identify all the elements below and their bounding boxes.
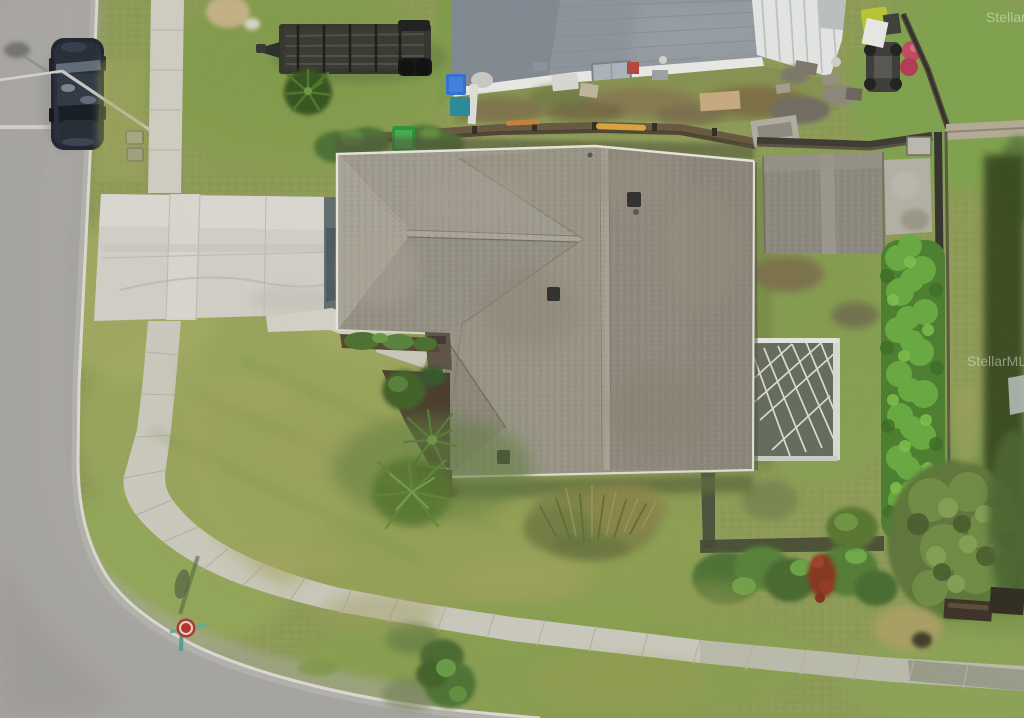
svg-text:StellarMLS: StellarMLS bbox=[967, 353, 1024, 369]
svg-text:StellarMLS: StellarMLS bbox=[986, 9, 1024, 25]
